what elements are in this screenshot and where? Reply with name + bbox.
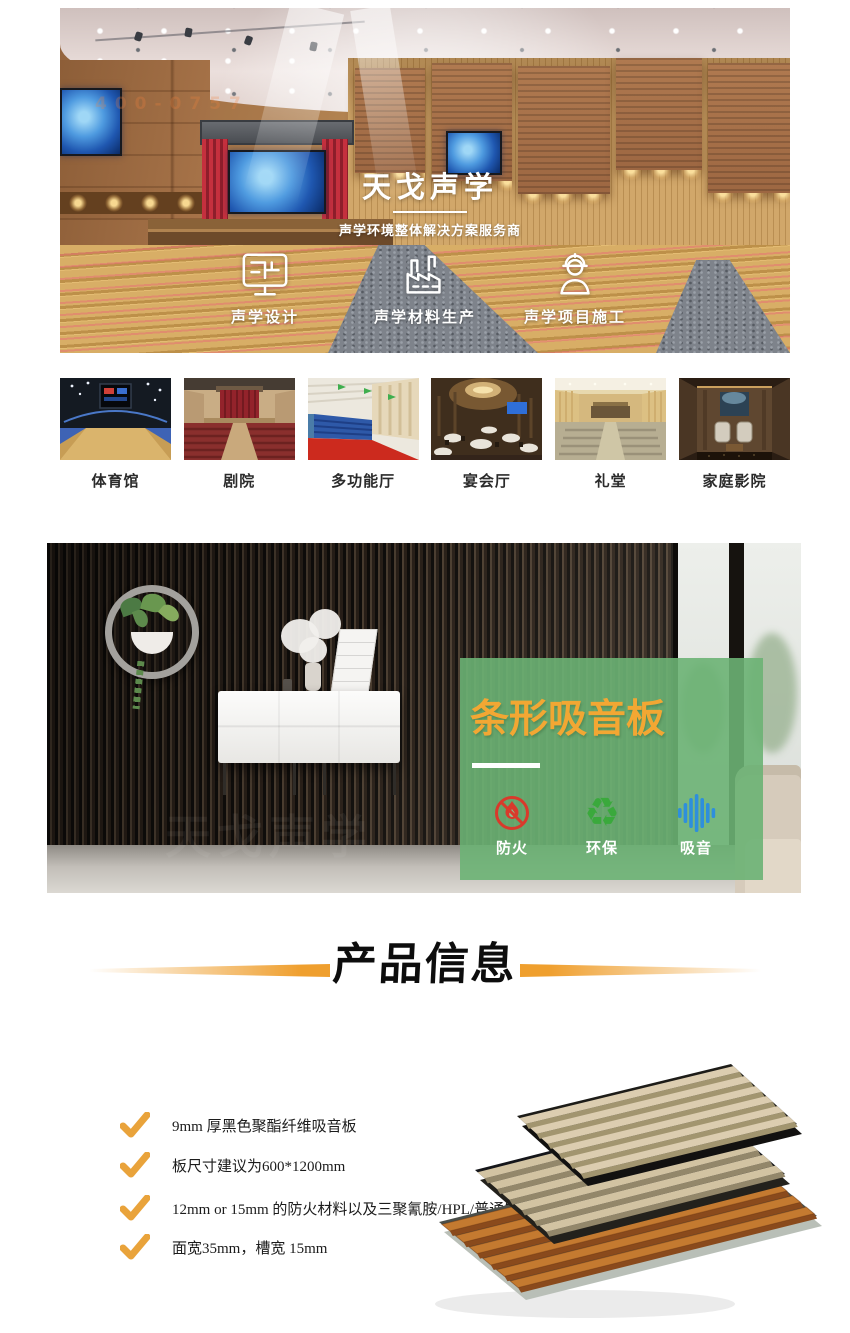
venue-label: 剧院 [184, 470, 295, 491]
hero-wood-panel [518, 66, 610, 194]
dried-flowers [299, 637, 327, 663]
sideboard-leg [323, 763, 326, 795]
plant-leaf [132, 608, 150, 629]
feature-eco: ♻ 环保 [562, 792, 642, 858]
hero-feature-production: 声学材料生产 [350, 248, 500, 327]
slat-panels-art [425, 1052, 825, 1324]
venue-label: 体育馆 [60, 470, 171, 491]
check-icon [120, 1234, 150, 1260]
check-icon [120, 1195, 150, 1221]
product-name-title: 条形吸音板 [470, 688, 665, 744]
title-underline [393, 211, 467, 213]
venue-label: 礼堂 [555, 470, 666, 491]
hero-feature-construction: 声学项目施工 [500, 248, 650, 327]
hero-wood-panel [616, 58, 702, 170]
hero-banner: 400-0757 天戈声学 声学环境整体解决方案服务商 声学设计 声学材料生产 [60, 8, 790, 353]
construction-worker-icon [549, 248, 601, 302]
downlight-glow [708, 193, 790, 213]
spec-text: 面宽35mm，槽宽 15mm [172, 1237, 327, 1258]
sideboard-leg [223, 763, 226, 795]
downlight-glow [616, 170, 702, 190]
home-cinema-thumb [679, 378, 790, 460]
venue-label: 多功能厅 [308, 470, 419, 491]
list-item: 面宽35mm，槽宽 15mm [120, 1234, 327, 1260]
venue-item-multifunction-hall[interactable]: 多功能厅 [308, 378, 419, 491]
product-panels-image [425, 1052, 825, 1324]
theater-thumb [184, 378, 295, 460]
factory-icon [399, 248, 451, 302]
planter-pot [131, 632, 173, 654]
product-showcase-image: 天戈声学 条形吸音板 防火 ♻ 环保 [47, 543, 801, 893]
hero-feature-label: 声学材料生产 [350, 306, 500, 327]
spec-text: 9mm 厚黑色聚酯纤维吸音板 [172, 1115, 357, 1136]
recycle-icon: ♻ [562, 792, 642, 834]
phone-watermark: 400-0757 [95, 94, 249, 114]
check-icon [120, 1152, 150, 1178]
brand-watermark: 天戈声学 [165, 801, 373, 867]
stage-curtain-left [202, 139, 228, 229]
venue-label: 宴会厅 [431, 470, 542, 491]
venue-label: 家庭影院 [679, 470, 790, 491]
product-overlay-panel: 条形吸音板 防火 ♻ 环保 [460, 658, 763, 880]
auditorium-thumb [555, 378, 666, 460]
venue-item-auditorium[interactable]: 礼堂 [555, 378, 666, 491]
fireproof-icon [472, 792, 552, 834]
check-icon [120, 1112, 150, 1138]
product-detail-page: 400-0757 天戈声学 声学环境整体解决方案服务商 声学设计 声学材料生产 [0, 0, 850, 1333]
section-heading: 产品信息 [0, 928, 850, 992]
venue-item-theater[interactable]: 剧院 [184, 378, 295, 491]
banquet-hall-thumb [431, 378, 542, 460]
dried-flowers [309, 609, 341, 639]
feature-fireproof: 防火 [472, 792, 552, 858]
title-underline [472, 763, 540, 768]
venue-item-gymnasium[interactable]: 体育馆 [60, 378, 171, 491]
list-item: 板尺寸建议为600*1200mm [120, 1152, 345, 1178]
hero-feature-label: 声学项目施工 [500, 306, 650, 327]
feature-label: 环保 [562, 837, 642, 858]
feature-sound-absorb: 吸音 [656, 792, 736, 858]
hero-wood-panel [708, 63, 790, 193]
monitor-plan-icon [239, 248, 291, 302]
venue-gallery: 体育馆 剧院 [60, 378, 790, 491]
spec-text: 板尺寸建议为600*1200mm [172, 1155, 345, 1176]
sideboard-leg [293, 763, 296, 795]
hero-feature-label: 声学设计 [190, 306, 340, 327]
venue-item-banquet-hall[interactable]: 宴会厅 [431, 378, 542, 491]
brand-title: 天戈声学 [340, 164, 520, 206]
sideboard-leg [393, 763, 396, 795]
downlight-glow [518, 194, 610, 214]
hero-feature-design: 声学设计 [190, 248, 340, 327]
venue-item-home-cinema[interactable]: 家庭影院 [679, 378, 790, 491]
multifunction-hall-thumb [308, 378, 419, 460]
sound-absorb-icon [656, 792, 736, 834]
vase [305, 663, 321, 691]
white-sideboard [218, 691, 400, 763]
brand-subtitle: 声学环境整体解决方案服务商 [305, 220, 555, 239]
hero-left-soffit-lights [60, 192, 210, 214]
product-info-section-header: 产品信息 [0, 936, 850, 1000]
gymnasium-thumb [60, 378, 171, 460]
feature-label: 吸音 [656, 837, 736, 858]
feature-label: 防火 [472, 837, 552, 858]
list-item: 9mm 厚黑色聚酯纤维吸音板 [120, 1112, 357, 1138]
wall-planter [105, 585, 199, 679]
